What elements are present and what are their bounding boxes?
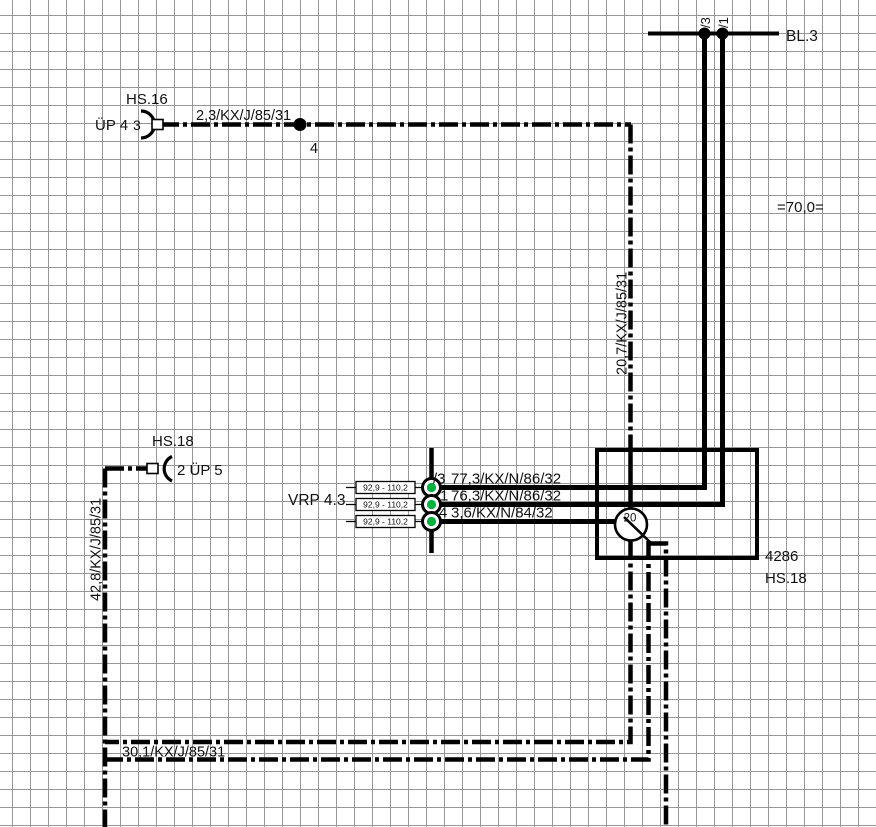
module-component-label: HS.18	[765, 570, 807, 587]
bottom-wire-label: 30,1/KX/J/85/31	[122, 745, 225, 761]
bl3-label: BL.3	[786, 28, 818, 45]
vrp-pin-3-contact-icon	[427, 517, 436, 526]
hs18-component-label: HS.18	[152, 433, 194, 450]
vrp-row-2-range-label: 92,9 - 110,2	[363, 500, 408, 510]
up4-terminal-icon	[152, 120, 163, 130]
vrp-pin-2-contact-icon	[427, 500, 436, 509]
bl3-pin-left-label: /3	[698, 17, 713, 28]
bl3-pin-right-label: /1	[716, 17, 731, 28]
bl3-tap-dot-right-icon	[717, 28, 729, 40]
junction-dot-icon	[294, 118, 307, 131]
up4-pin-label: 3	[133, 117, 141, 133]
wiring-diagram: HS.16 ÜP 4 3 2,3/KX/J/85/31 4 20,7/KX/J/…	[0, 0, 876, 827]
vrp-row-1-pin-label: /3	[433, 471, 446, 488]
grid-background	[0, 0, 876, 827]
up5-connector-label: 2 ÜP 5	[177, 461, 223, 479]
dimension-label: =70,0=	[777, 199, 824, 216]
vrp-row-1-wire-label: 77,3/KX/N/86/32	[451, 471, 561, 488]
vrp-row-3-wire-label: 3,6/KX/N/84/32	[451, 505, 553, 522]
up5-terminal-icon	[147, 464, 158, 474]
vrp-row-3-range-label: 92,9 - 110,2	[363, 517, 408, 527]
riser-20-7-label: 20,7/KX/J/85/31	[615, 272, 631, 375]
module-code-label: 4286	[765, 548, 798, 565]
vrp-row-1-range-label: 92,9 - 110,2	[363, 483, 408, 493]
vrp-row-3-pin-label: 4	[439, 505, 447, 522]
vrp-label: VRP 4.3	[288, 492, 345, 509]
schematic-canvas: HS.16 ÜP 4 3 2,3/KX/J/85/31 4 20,7/KX/J/…	[0, 0, 876, 827]
junction-number-label: 4	[310, 141, 318, 157]
vrp-row-2-pin-label: 1	[440, 488, 448, 505]
vrp-row-2-wire-label: 76,3/KX/N/86/32	[451, 488, 561, 505]
up4-connector-label: ÜP 4	[95, 116, 128, 134]
riser-42-8-label: 42,8/KX/J/85/31	[89, 498, 105, 601]
hs16-component-label: HS.16	[126, 91, 168, 108]
pass-through-20-label: 20	[624, 513, 637, 525]
wire-2-3-label: 2,3/KX/J/85/31	[196, 108, 291, 124]
bl3-tap-dot-left-icon	[699, 28, 711, 40]
